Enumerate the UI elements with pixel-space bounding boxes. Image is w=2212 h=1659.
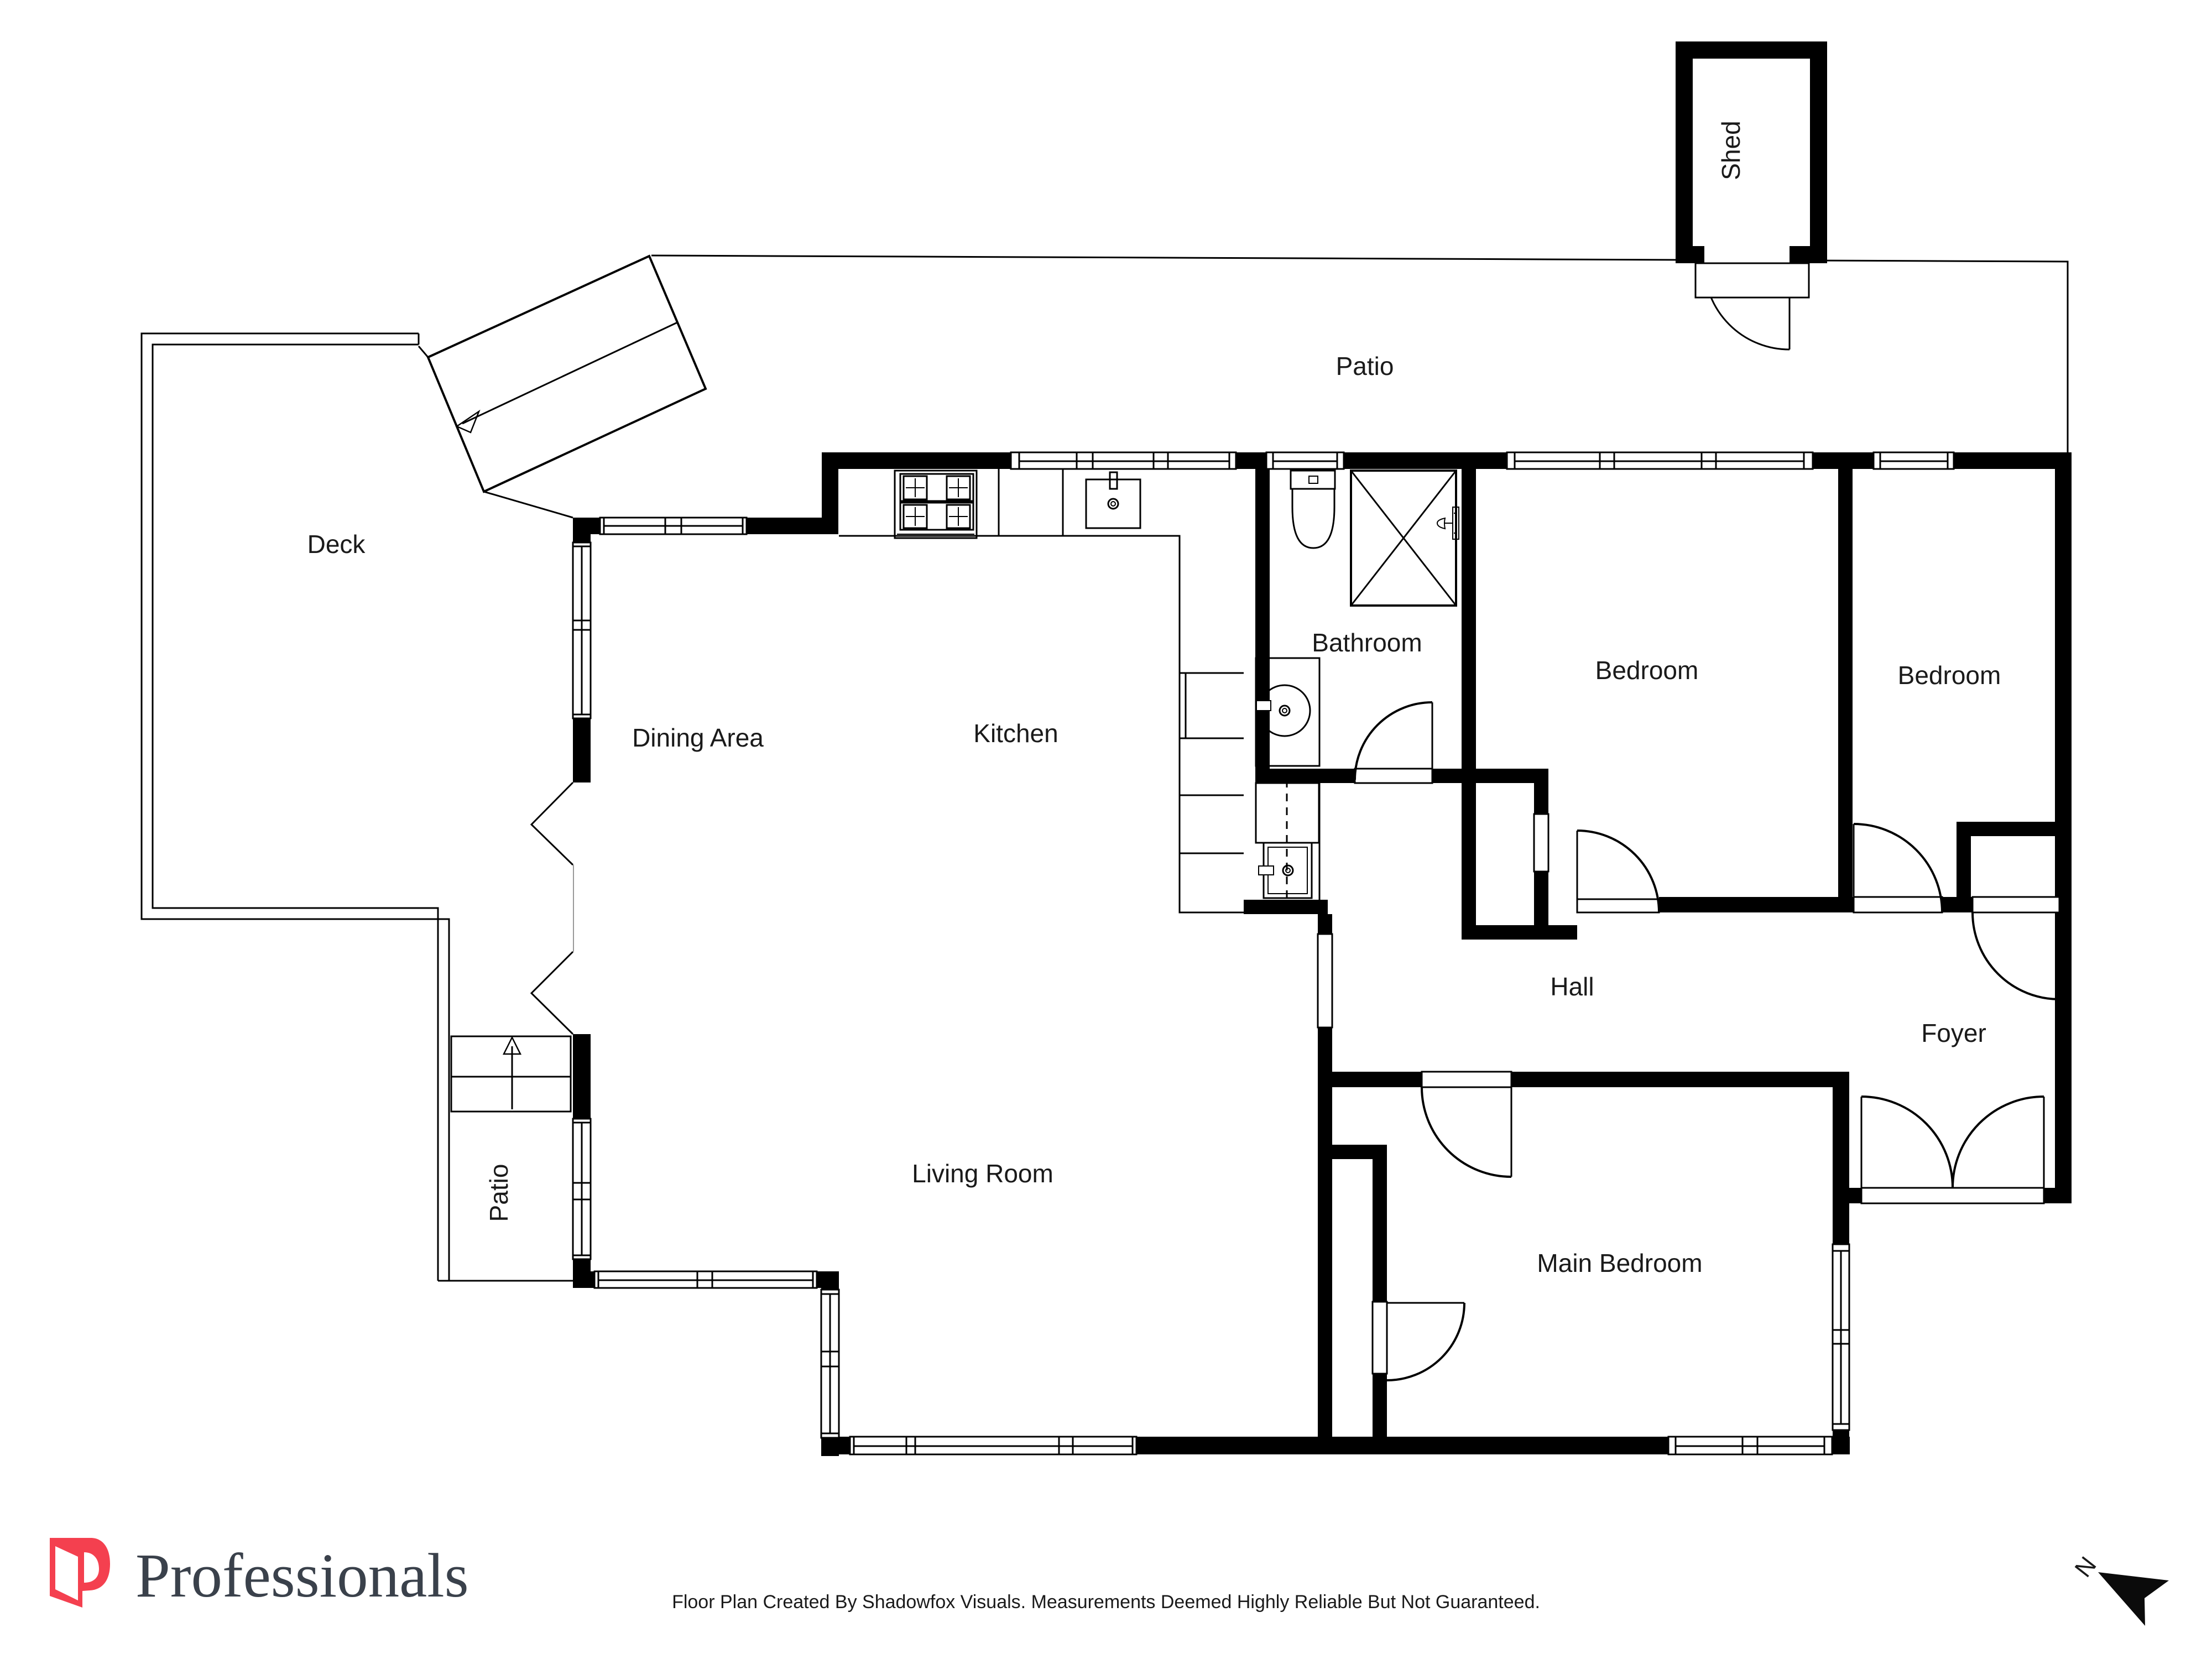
svg-text:Main Bedroom: Main Bedroom xyxy=(1537,1249,1702,1277)
svg-text:Patio: Patio xyxy=(1336,352,1394,380)
svg-text:Kitchen: Kitchen xyxy=(973,719,1058,748)
svg-text:Floor Plan Created By Shadowfo: Floor Plan Created By Shadowfox Visuals.… xyxy=(672,1592,1540,1613)
svg-text:Bedroom: Bedroom xyxy=(1898,661,2001,690)
svg-text:Hall: Hall xyxy=(1550,972,1594,1001)
svg-text:Patio: Patio xyxy=(484,1164,513,1222)
svg-text:Professionals: Professionals xyxy=(135,1541,469,1610)
svg-text:Shed: Shed xyxy=(1717,121,1745,180)
svg-text:Foyer: Foyer xyxy=(1921,1019,1986,1047)
svg-text:Bedroom: Bedroom xyxy=(1595,656,1699,685)
svg-text:Bathroom: Bathroom xyxy=(1312,628,1422,657)
svg-text:Dining Area: Dining Area xyxy=(632,723,764,752)
svg-text:Deck: Deck xyxy=(307,530,366,559)
svg-text:Living Room: Living Room xyxy=(912,1159,1053,1188)
